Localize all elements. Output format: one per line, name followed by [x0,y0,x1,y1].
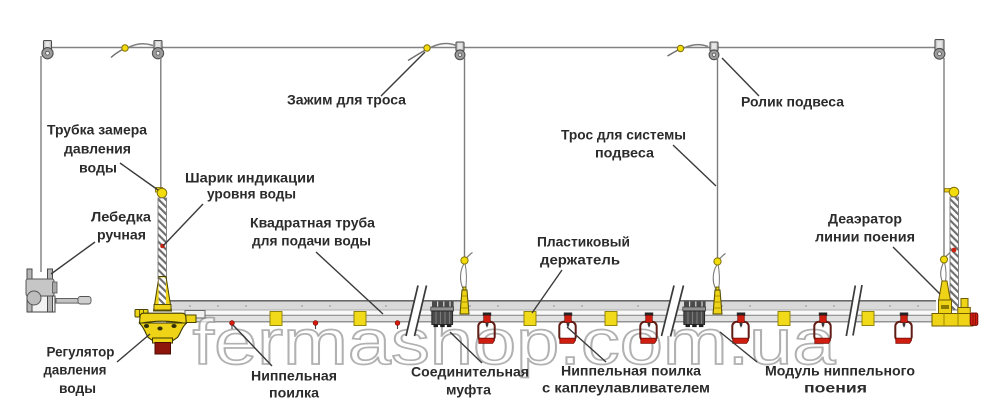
svg-text:Пластиковый: Пластиковый [537,235,630,250]
svg-text:Ниппельная поилка: Ниппельная поилка [561,364,702,379]
svg-text:Деаэратор: Деаэратор [828,212,902,227]
svg-text:уровня воды: уровня воды [207,187,296,202]
svg-text:Модуль ниппельного: Модуль ниппельного [765,364,915,379]
svg-text:давления: давления [64,142,131,157]
svg-text:поилка: поилка [269,386,320,401]
svg-text:Соединительная: Соединительная [411,365,529,380]
svg-text:муфта: муфта [446,383,492,398]
svg-text:Шарик индикации: Шарик индикации [185,171,315,186]
svg-text:Регулятор: Регулятор [47,345,115,360]
svg-text:линии поения: линии поения [815,230,915,245]
svg-text:воды: воды [59,381,96,396]
svg-text:Ниппельная: Ниппельная [251,369,337,384]
svg-text:поения: поения [804,381,867,396]
svg-text:с каплеулавливателем: с каплеулавливателем [542,381,710,396]
svg-text:для подачи воды: для подачи воды [252,234,371,249]
svg-text:подвеса: подвеса [595,146,655,161]
svg-text:Лебедка: Лебедка [91,210,152,225]
svg-text:ручная: ручная [97,228,146,243]
svg-text:Ролик подвеса: Ролик подвеса [741,95,845,110]
svg-text:Трубка замера: Трубка замера [47,123,148,138]
svg-text:воды: воды [79,161,117,176]
svg-text:Квадратная труба: Квадратная труба [250,216,375,231]
svg-text:давления: давления [44,363,107,378]
svg-text:Трос для системы: Трос для системы [561,128,686,143]
svg-text:Зажим для троса: Зажим для троса [287,93,406,108]
svg-text:держатель: держатель [540,253,620,268]
